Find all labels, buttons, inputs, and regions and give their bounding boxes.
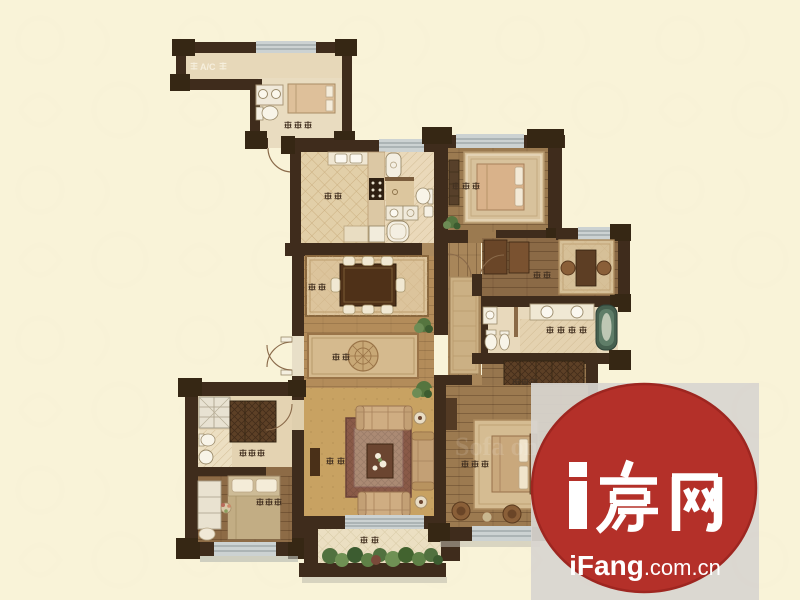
svg-text:A/C: A/C: [200, 62, 216, 72]
svg-text:iFang.com.cn: iFang.com.cn: [569, 550, 721, 581]
svg-text:Sofa on: Sofa on: [455, 432, 539, 461]
